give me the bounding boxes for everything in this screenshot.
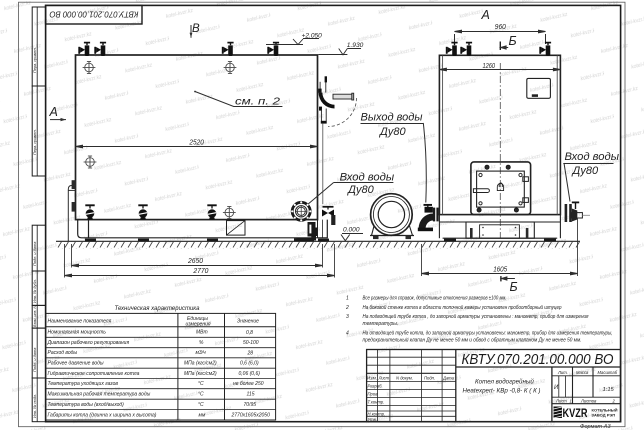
svg-text:Номинальная мощность: Номинальная мощность <box>48 330 107 336</box>
svg-text:Лист: Лист <box>555 398 567 403</box>
svg-text:Инв. № дубл.: Инв. № дубл. <box>32 279 37 303</box>
svg-text:Рабочее давление воды: Рабочее давление воды <box>48 361 104 367</box>
svg-text:Подп. и дата: Подп. и дата <box>32 347 37 372</box>
svg-text:70/95: 70/95 <box>244 402 257 408</box>
svg-text:Изм.: Изм. <box>367 375 377 380</box>
svg-text:Пров.: Пров. <box>368 391 379 396</box>
svg-text:измерения: измерения <box>186 322 211 328</box>
svg-text:Котел водогрейный: Котел водогрейный <box>475 379 534 386</box>
svg-text:50-100: 50-100 <box>243 340 259 346</box>
svg-text:Инв. № подл.: Инв. № подл. <box>32 394 37 418</box>
svg-text:0.000: 0.000 <box>343 227 360 234</box>
svg-text:+2.050: +2.050 <box>302 33 323 40</box>
svg-text:Температура уходящих газов: Температура уходящих газов <box>48 381 119 387</box>
svg-text:2770: 2770 <box>192 266 209 275</box>
svg-text:На подводящей трубе котла , д: На подводящей трубе котла , до запорной … <box>363 313 589 320</box>
svg-text:ЗАВОД РЭП: ЗАВОД РЭП <box>592 413 616 418</box>
svg-text:Лист: Лист <box>378 375 390 380</box>
svg-text:КВТУ.070.201.00.000 ВО: КВТУ.070.201.00.000 ВО <box>462 352 614 368</box>
svg-text:115: 115 <box>247 392 255 398</box>
svg-text:°С: °С <box>198 402 204 408</box>
svg-text:2650: 2650 <box>187 256 204 265</box>
svg-text:3: 3 <box>346 314 349 320</box>
svg-text:предохранительный клапан Ду н: предохранительный клапан Ду не менее 50 … <box>363 337 582 344</box>
svg-text:4: 4 <box>346 331 349 337</box>
svg-text:Взам. инв. №: Взам. инв. № <box>33 305 37 327</box>
svg-text:Heatexpert- КВр -0,8- К ( К ): Heatexpert- КВр -0,8- К ( К ) <box>463 388 541 395</box>
svg-text:м3/ч: м3/ч <box>196 350 207 356</box>
svg-text:температуры.: температуры. <box>363 321 399 327</box>
svg-text:Ду80: Ду80 <box>378 126 406 138</box>
svg-text:Вход воды: Вход воды <box>340 172 395 184</box>
svg-text:1: 1 <box>346 296 349 302</box>
svg-text:Все размеры для справок, допус: Все размеры для справок, допустимые откл… <box>363 296 507 302</box>
svg-text:КВТУ.070.201.00.000 ВО: КВТУ.070.201.00.000 ВО <box>50 10 139 19</box>
svg-text:Б: Б <box>510 280 518 294</box>
svg-text:°С: °С <box>198 381 204 387</box>
svg-text:Разраб.: Разраб. <box>368 383 383 388</box>
svg-text:Наименование показателя: Наименование показателя <box>48 319 112 325</box>
svg-text:1.930: 1.930 <box>347 42 364 49</box>
svg-text:1:15: 1:15 <box>603 387 615 393</box>
svg-text:Листов: Листов <box>580 398 597 403</box>
svg-text:%: % <box>199 340 204 346</box>
svg-text:1: 1 <box>570 398 572 403</box>
svg-text:Ду80: Ду80 <box>346 184 374 196</box>
svg-text:Масштаб: Масштаб <box>598 370 618 375</box>
svg-text:1260: 1260 <box>483 61 496 70</box>
svg-text:Подп.: Подп. <box>424 375 435 380</box>
svg-text:Расход воды: Расход воды <box>48 350 78 356</box>
svg-text:Вход воды: Вход воды <box>565 151 620 163</box>
svg-text:Техническая характеристика: Техническая характеристика <box>115 306 201 312</box>
svg-text:Масса: Масса <box>576 370 589 375</box>
svg-text:Выход воды: Выход воды <box>361 112 423 124</box>
svg-text:Диапазон рабочего регулировани: Диапазон рабочего регулирования <box>47 340 130 346</box>
svg-text:960: 960 <box>495 24 506 31</box>
svg-text:Гидравлическое сопротивление к: Гидравлическое сопротивление котла <box>48 371 140 377</box>
svg-text:0,06 (0,6): 0,06 (0,6) <box>239 371 261 377</box>
svg-text:мм: мм <box>199 412 206 418</box>
svg-text:На боковой стенке котла в обла: На боковой стенке котла в области топочн… <box>363 304 562 311</box>
svg-text:А: А <box>49 105 58 119</box>
svg-text:Значение: Значение <box>237 319 259 325</box>
svg-text:Лит.: Лит. <box>557 370 568 375</box>
svg-text:МВт: МВт <box>196 330 208 336</box>
svg-text:И: И <box>554 385 559 391</box>
svg-text:МПа (кгс/см2): МПа (кгс/см2) <box>184 361 217 367</box>
svg-text:см. п. 2: см. п. 2 <box>235 95 280 107</box>
svg-text:Перв. примен.: Перв. примен. <box>32 129 37 155</box>
svg-text:Т.контр.: Т.контр. <box>368 400 385 405</box>
svg-text:Дата: Дата <box>442 375 454 380</box>
svg-text:°С: °С <box>198 392 204 398</box>
svg-text:Перв. примен.: Перв. примен. <box>32 47 37 73</box>
svg-text:Формат А3: Формат А3 <box>580 424 611 430</box>
svg-text:2: 2 <box>345 305 349 311</box>
svg-text:Максимальная рабочая температу: Максимальная рабочая температура воды <box>48 392 151 398</box>
svg-text:0,8: 0,8 <box>246 330 253 336</box>
svg-text:KVZR: KVZR <box>563 406 588 420</box>
svg-text:Н.контр.: Н.контр. <box>368 411 386 416</box>
svg-text:1605: 1605 <box>493 264 508 273</box>
svg-text:Температура воды (вход/выход): Температура воды (вход/выход) <box>48 402 125 408</box>
svg-text:0,6 (6,0): 0,6 (6,0) <box>240 361 259 367</box>
svg-text:В: В <box>192 23 200 35</box>
svg-text:28: 28 <box>247 351 254 357</box>
svg-text:Габариты котла (длинна х ширин: Габариты котла (длинна х ширина х высота… <box>48 412 157 418</box>
svg-text:не более 250: не более 250 <box>233 381 264 387</box>
svg-text:Ду80: Ду80 <box>571 165 599 177</box>
svg-text:Б: Б <box>509 34 517 48</box>
svg-text:На отводящей трубе котла, до з: На отводящей трубе котла, до запорной ар… <box>363 330 613 337</box>
svg-text:2770х1605х2050: 2770х1605х2050 <box>231 412 271 418</box>
svg-text:2520: 2520 <box>189 138 205 147</box>
svg-text:МПа (кгс/см2): МПа (кгс/см2) <box>184 371 217 377</box>
svg-text:А: А <box>481 8 490 22</box>
svg-text:Подп. и дата: Подп. и дата <box>32 241 37 266</box>
svg-text:N докум.: N докум. <box>396 375 413 380</box>
svg-text:Утв.: Утв. <box>368 417 378 422</box>
